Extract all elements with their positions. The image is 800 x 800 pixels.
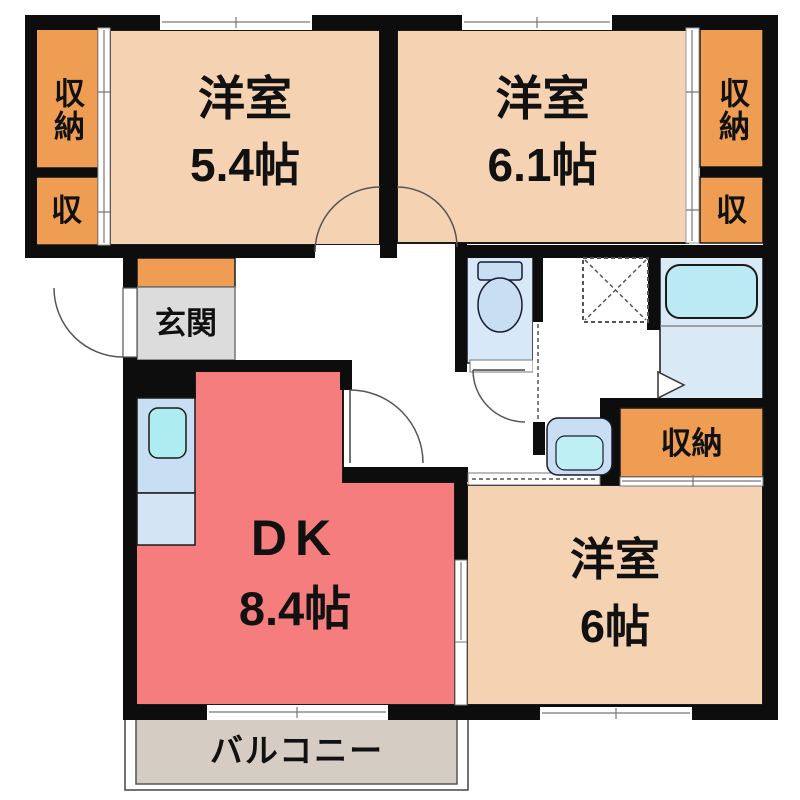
closet-bottom-right-label: 収納 [620, 428, 763, 459]
entry-door-arc [54, 288, 123, 357]
bedroom1-size-label: 5.4帖 [110, 142, 380, 188]
closet-top-left-label: 収納 [35, 55, 98, 165]
wall [533, 255, 543, 322]
toilet-bowl [478, 278, 522, 332]
wall [343, 467, 468, 482]
toilet-door-arc [473, 370, 525, 422]
closet-top-right-label: 収納 [700, 55, 763, 165]
wall [340, 360, 352, 390]
genkan-label: 玄関 [137, 308, 235, 339]
wall [123, 255, 137, 288]
dk-size-label: 8.4帖 [135, 585, 455, 632]
bedroom3-size-label: 6帖 [467, 604, 763, 649]
balcony-label: バルコニー [137, 734, 457, 767]
dk-bedroom3-partition [455, 642, 467, 705]
bedroom1-name-label: 洋室 [110, 75, 380, 122]
entry-door-leaf [123, 288, 137, 357]
wall [123, 372, 195, 398]
door-gap-bedroom2 [397, 245, 455, 258]
wall [763, 15, 778, 720]
room-bedroom3 [467, 485, 763, 705]
wall [700, 167, 763, 177]
washroom-sliding-door [533, 322, 543, 422]
washbasin-bowl [556, 436, 603, 470]
closet-top-right-small-label: 収 [700, 195, 763, 226]
bedroom2-name-label: 洋室 [397, 75, 688, 122]
closet-top-left-small-label: 収 [35, 195, 98, 226]
bedroom2-size-label: 6.1帖 [397, 142, 688, 188]
kitchen-sink [149, 408, 186, 458]
bathtub [666, 265, 757, 318]
dk-name-label: DK [135, 513, 455, 563]
bedroom3-name-label: 洋室 [467, 537, 763, 582]
shoe-cabinet [137, 258, 235, 287]
wall [35, 168, 98, 177]
wall [455, 243, 467, 372]
wall [123, 360, 352, 372]
dk-door-arc [350, 390, 423, 463]
wall [533, 422, 545, 455]
floor-plan: 洋室 5.4帖 洋室 6.1帖 洋室 6帖 DK 8.4帖 玄関 収納 収 収納… [0, 0, 800, 800]
door-gap-bedroom1 [315, 245, 380, 258]
wall [380, 15, 397, 258]
wall [455, 467, 467, 560]
room-bedroom2 [397, 30, 688, 243]
room-bedroom1 [110, 30, 380, 245]
wall [25, 15, 778, 30]
